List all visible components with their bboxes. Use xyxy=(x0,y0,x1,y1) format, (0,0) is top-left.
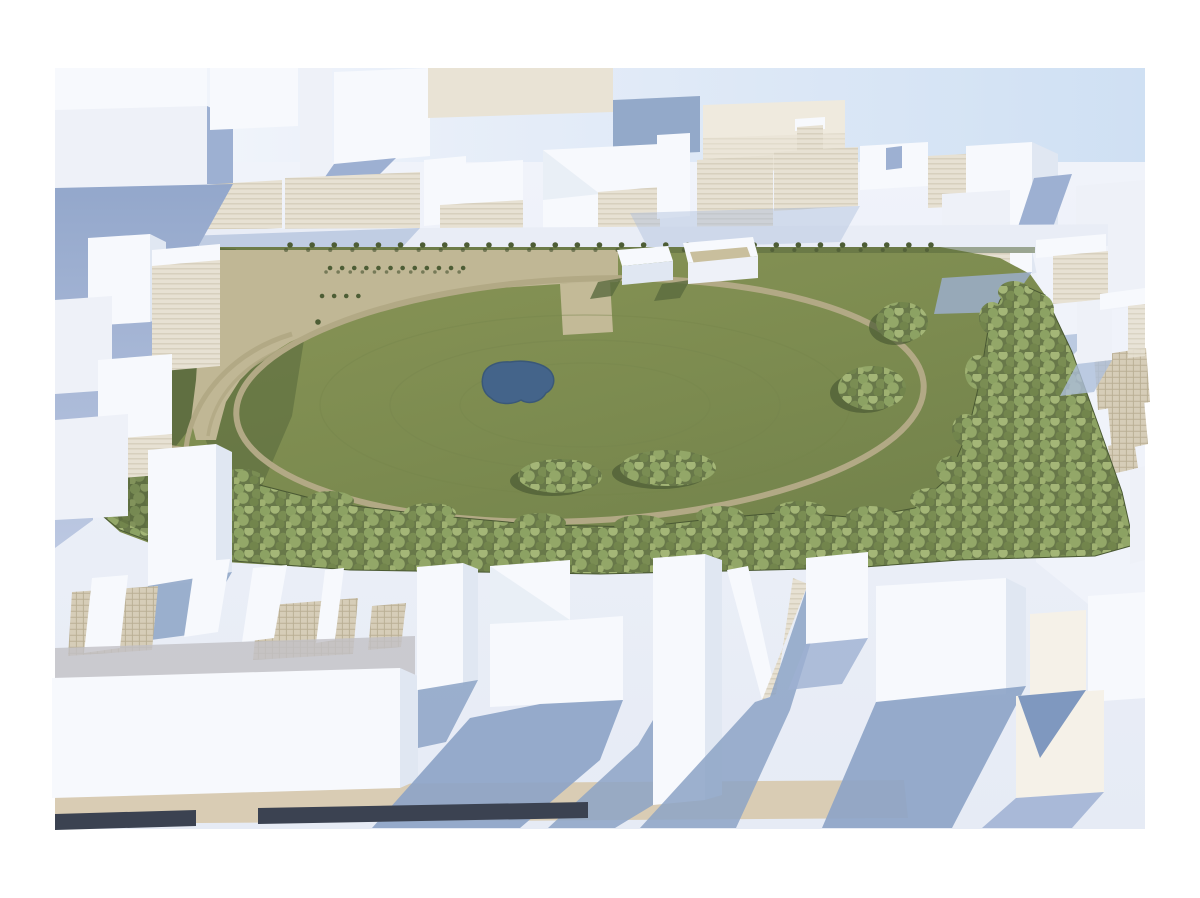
tree-cluster xyxy=(518,459,602,493)
building-tower xyxy=(657,133,690,219)
slab-side xyxy=(400,668,418,788)
canopy-bump xyxy=(910,488,950,510)
building-block xyxy=(1130,466,1145,564)
tree-cluster xyxy=(876,302,928,342)
canopy-bump xyxy=(1026,294,1054,326)
notch-shadow xyxy=(886,146,902,170)
building-block xyxy=(806,552,868,644)
canopy-bump xyxy=(404,503,456,523)
canopy-bump xyxy=(514,513,566,533)
building-face xyxy=(55,106,207,188)
building-slab xyxy=(417,563,463,690)
building-side xyxy=(463,563,478,686)
single-tree xyxy=(315,319,321,325)
building-block xyxy=(55,68,207,110)
building-block xyxy=(334,68,430,164)
tree-cluster xyxy=(838,366,906,410)
canopy-bump xyxy=(306,491,354,511)
canopy-bump xyxy=(846,506,894,526)
canopy-bump xyxy=(998,281,1030,303)
building-block xyxy=(210,68,298,130)
canopy-bump xyxy=(952,414,980,446)
canopy-bump xyxy=(774,501,826,521)
building-block xyxy=(1088,592,1145,702)
striped-slab xyxy=(285,172,420,234)
tree-cluster xyxy=(620,450,716,486)
building-slab xyxy=(876,578,1006,702)
building-block xyxy=(55,414,128,520)
canopy-bump xyxy=(936,456,968,484)
pond xyxy=(482,361,553,403)
striped-slab xyxy=(774,147,858,211)
striped-tower xyxy=(1128,304,1145,358)
large-slab-roof xyxy=(52,668,400,798)
canopy-bump xyxy=(965,355,991,389)
warm-wall xyxy=(428,68,613,118)
building-side xyxy=(1006,578,1026,694)
canopy-bump xyxy=(696,506,744,526)
canopy-bump xyxy=(614,515,666,535)
massing-render xyxy=(0,0,1200,898)
building-tower xyxy=(300,68,332,180)
canopy-bump xyxy=(979,302,1005,334)
render-canvas xyxy=(0,0,1200,898)
